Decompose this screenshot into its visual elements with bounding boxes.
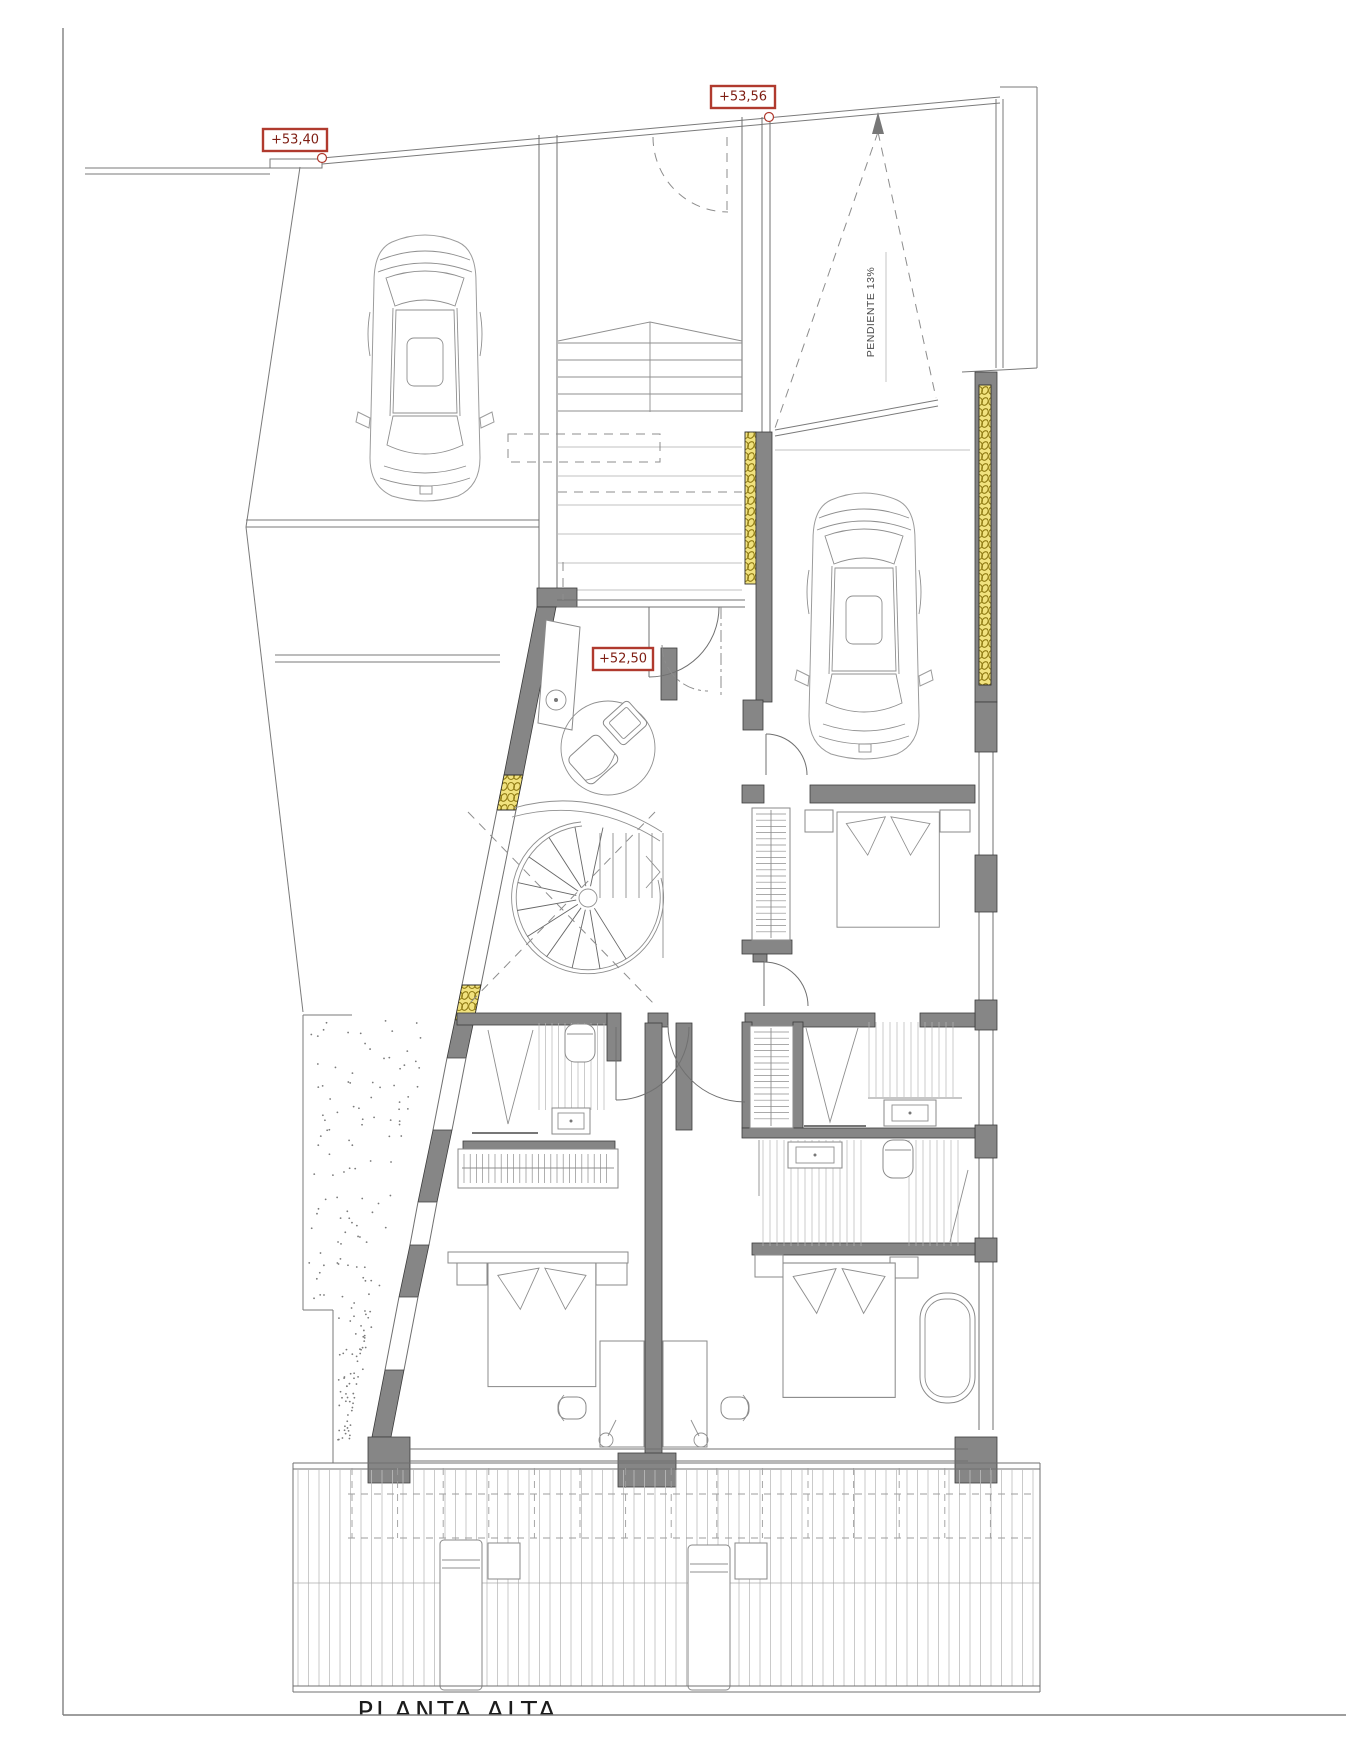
bed	[488, 1263, 596, 1387]
insulation-hatch	[745, 432, 756, 584]
plan-title: PLANTA ALTA	[357, 1697, 558, 1727]
bathroom-left	[472, 1023, 604, 1134]
bathtub	[920, 1293, 975, 1403]
level-marker-entry: +52,50	[593, 648, 653, 670]
sun-lounger	[688, 1545, 730, 1690]
level-marker-parking-text: +53,40	[271, 133, 319, 148]
garage-ramp: PENDIENTE 13%	[775, 112, 970, 450]
garden-dots	[308, 1020, 421, 1441]
level-marker-street: +53,56	[711, 86, 775, 122]
side-table	[488, 1543, 520, 1579]
exterior-stairs	[508, 117, 770, 590]
desk	[600, 1341, 644, 1447]
deck-planks	[298, 1470, 1033, 1686]
bedroom-2	[448, 1149, 644, 1447]
bedroom-3	[663, 1255, 975, 1447]
garden-strip	[308, 1020, 421, 1441]
ramp-arrow-icon	[872, 112, 884, 134]
desk-chair	[558, 1395, 586, 1421]
desk	[663, 1341, 707, 1447]
car-top-view-garage	[795, 493, 933, 759]
side-table	[735, 1543, 767, 1579]
ramp-slope-label: PENDIENTE 13%	[865, 267, 877, 358]
bathroom-tiles	[909, 1140, 958, 1246]
bed	[837, 812, 939, 927]
insulation-hatch	[497, 775, 523, 810]
bed	[783, 1263, 895, 1397]
deck-terrace	[293, 1463, 1040, 1692]
bathroom-tiles	[869, 1022, 953, 1097]
floor-plan-svg: PENDIENTE 13%	[0, 0, 1346, 1755]
sun-lounger	[440, 1540, 482, 1690]
drawing-sheet: PENDIENTE 13%	[0, 0, 1346, 1755]
insulation-hatch	[979, 385, 991, 685]
entry-furniture	[538, 620, 655, 795]
level-marker-parking: +53,40	[263, 129, 327, 163]
corridor-bathroom	[750, 1022, 962, 1128]
level-marker-street-text: +53,56	[719, 90, 767, 105]
level-marker-entry-text: +52,50	[599, 652, 647, 667]
car-top-view-parking	[356, 235, 494, 501]
deck-joists	[348, 1468, 1036, 1538]
desk-chair	[721, 1395, 749, 1421]
bathroom-right	[763, 1140, 968, 1246]
bedroom-1	[752, 808, 970, 940]
